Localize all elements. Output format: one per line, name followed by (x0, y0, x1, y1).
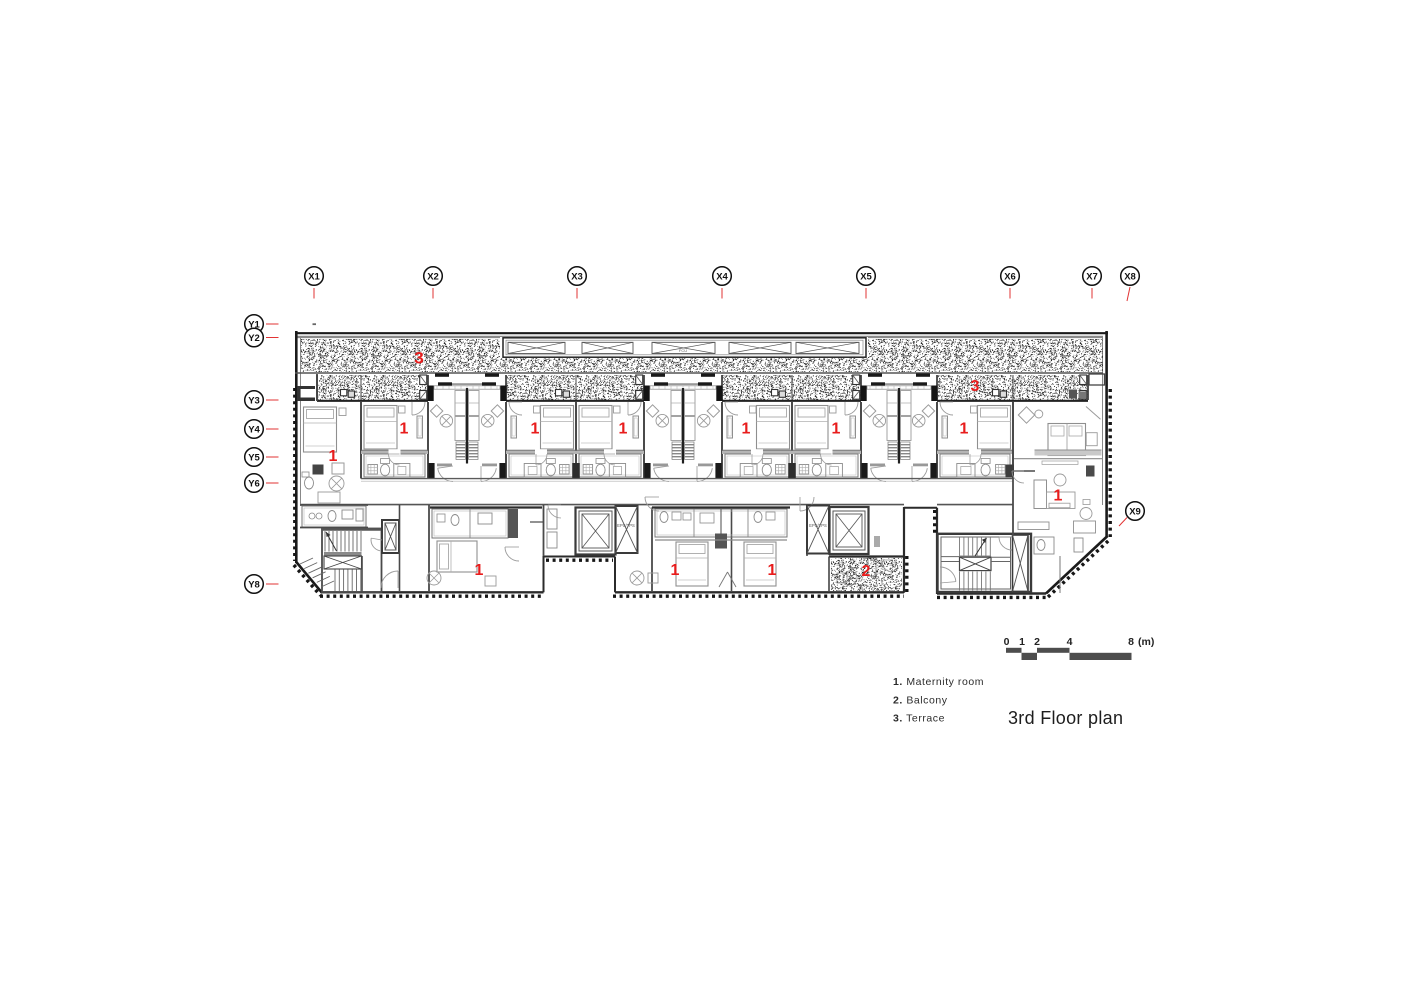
svg-text:Y5: Y5 (248, 452, 260, 463)
svg-text:1: 1 (1019, 636, 1025, 648)
svg-text:1: 1 (832, 421, 841, 438)
svg-text:1. Maternity room: 1. Maternity room (893, 676, 984, 688)
svg-text:0: 0 (1004, 636, 1010, 648)
svg-text:(m): (m) (1138, 636, 1154, 648)
svg-text:X9: X9 (1129, 506, 1141, 517)
svg-text:X6: X6 (1004, 271, 1016, 282)
svg-text:X5: X5 (860, 271, 872, 282)
svg-text:Y3: Y3 (248, 395, 260, 406)
svg-text:Y8: Y8 (248, 579, 260, 590)
svg-text:X1: X1 (308, 271, 320, 282)
svg-text:1: 1 (1054, 488, 1063, 505)
svg-text:3: 3 (971, 378, 980, 395)
svg-text:3. Terrace: 3. Terrace (893, 713, 945, 725)
svg-text:1: 1 (742, 421, 751, 438)
svg-text:X4: X4 (716, 271, 728, 282)
svg-text:3rd Floor plan: 3rd Floor plan (1008, 708, 1123, 728)
svg-text:X3: X3 (571, 271, 583, 282)
svg-text:2. Balcony: 2. Balcony (893, 695, 948, 707)
svg-text:Y6: Y6 (248, 478, 260, 489)
svg-text:Y2: Y2 (248, 333, 260, 344)
svg-text:X8: X8 (1124, 271, 1136, 282)
svg-text:1: 1 (531, 421, 540, 438)
svg-text:1: 1 (619, 421, 628, 438)
svg-text:2: 2 (862, 563, 871, 580)
svg-text:1: 1 (329, 448, 338, 465)
svg-text:1: 1 (475, 562, 484, 579)
svg-text:Y4: Y4 (248, 424, 260, 435)
svg-text:X2: X2 (427, 271, 439, 282)
svg-text:8: 8 (1128, 636, 1134, 648)
svg-text:1: 1 (768, 562, 777, 579)
svg-text:4: 4 (1067, 636, 1073, 648)
svg-text:1: 1 (400, 421, 409, 438)
svg-text:3: 3 (414, 349, 423, 368)
svg-text:2: 2 (1034, 636, 1040, 648)
svg-text:FCU: FCU (679, 348, 687, 353)
svg-text:EPS/TPS: EPS/TPS (617, 523, 635, 528)
svg-text:EPS/TPS: EPS/TPS (809, 523, 827, 528)
svg-text:1: 1 (671, 562, 680, 579)
svg-text:X7: X7 (1086, 271, 1098, 282)
svg-text:1: 1 (960, 421, 969, 438)
